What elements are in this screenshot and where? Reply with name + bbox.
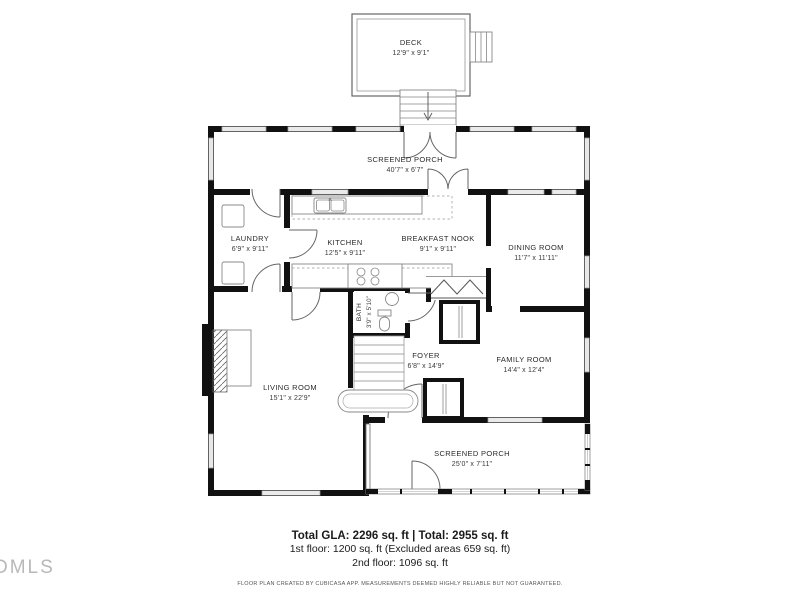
first-floor-line: 1st floor: 1200 sq. ft (Excluded areas 6… — [0, 543, 800, 557]
laundry-kitchen-door-icon — [289, 230, 317, 258]
room-label-screened-porch-bottom: SCREENED PORCH 25'0" x 7'11" — [434, 449, 510, 468]
room-name: KITCHEN — [327, 238, 362, 247]
stove-icon — [348, 264, 402, 288]
second-floor-line: 2nd floor: 1096 sq. ft — [0, 557, 800, 571]
room-name: LIVING ROOM — [263, 383, 317, 392]
foyer-closet-lower — [425, 380, 462, 418]
total-gla-line: Total GLA: 2296 sq. ft | Total: 2955 sq.… — [0, 529, 800, 543]
room-name: DINING ROOM — [508, 243, 564, 252]
room-label-dining-room: DINING ROOM 11'7" x 11'11" — [508, 243, 564, 262]
laundry-fixtures — [222, 205, 244, 284]
area-summary: Total GLA: 2296 sq. ft | Total: 2955 sq.… — [0, 529, 800, 570]
walls — [202, 125, 590, 496]
room-name: FOYER — [412, 351, 440, 360]
bottom-porch-structure — [366, 424, 590, 494]
deck-stairs-icon — [400, 90, 456, 130]
room-label-family-room: FAMILY ROOM 14'4" x 12'4" — [496, 355, 551, 374]
room-label-living-room: LIVING ROOM 15'1" x 22'9" — [263, 383, 317, 402]
room-label-laundry: LAUNDRY 6'9" x 9'11" — [231, 234, 269, 253]
room-name: SCREENED PORCH — [434, 449, 510, 458]
room-label-kitchen: KITCHEN 12'5" x 9'11" — [325, 238, 366, 257]
room-label-foyer: FOYER 6'8" x 14'9" — [408, 351, 445, 370]
kitchen-living-door-icon — [292, 292, 320, 320]
room-dims: 11'7" x 11'11" — [514, 255, 558, 262]
foyer-closet-upper — [441, 302, 478, 342]
room-name: SCREENED PORCH — [367, 155, 443, 164]
room-dims: 40'7" x 6'7" — [387, 167, 424, 174]
living-fireplace-icon — [213, 330, 251, 392]
bath-fixtures — [378, 293, 399, 332]
room-dims: 12'9" x 9'1" — [393, 50, 430, 57]
room-label-bath: BATH 3'9" x 5'10" — [356, 296, 373, 328]
washer-icon — [222, 205, 244, 227]
french-door-nook-icon — [428, 169, 468, 189]
room-dims: 6'9" x 9'11" — [232, 246, 269, 253]
kitchen-sink-icon — [314, 198, 346, 213]
room-label-screened-porch-top: SCREENED PORCH 40'7" x 6'7" — [367, 155, 443, 174]
deck-side-steps-icon — [470, 32, 492, 62]
room-name: FAMILY ROOM — [496, 355, 551, 364]
bath-sink-icon — [386, 293, 399, 306]
floor-plan-drawing: DECK 12'9" x 9'1" SCREENED PORCH 40'7" x… — [0, 0, 800, 600]
nook-fireplace-icon — [426, 276, 486, 300]
room-dims: 3'9" x 5'10" — [367, 296, 373, 328]
dmls-watermark: DMLS — [0, 557, 55, 579]
room-dims: 25'0" x 7'11" — [452, 461, 493, 468]
deck-structure — [352, 14, 492, 130]
room-label-breakfast-nook: BREAKFAST NOOK 9'1" x 9'11" — [401, 234, 474, 253]
room-dims: 6'8" x 14'9" — [408, 363, 445, 370]
toilet-icon — [378, 310, 391, 331]
room-dims: 12'5" x 9'11" — [325, 250, 366, 257]
room-name: BATH — [356, 303, 363, 321]
room-name: LAUNDRY — [231, 234, 269, 243]
room-dims: 14'4" x 12'4" — [504, 367, 545, 374]
room-name: DECK — [400, 38, 422, 47]
room-dims: 9'1" x 9'11" — [420, 246, 457, 253]
dryer-icon — [222, 262, 244, 284]
room-dims: 15'1" x 22'9" — [270, 395, 311, 402]
chimney-bump — [202, 324, 213, 396]
room-name: BREAKFAST NOOK — [401, 234, 474, 243]
porch-door-icon — [412, 461, 440, 489]
floor-plan-page: DECK 12'9" x 9'1" SCREENED PORCH 40'7" x… — [0, 0, 800, 600]
disclaimer-text: FLOOR PLAN CREATED BY CUBICASA APP. MEAS… — [0, 581, 800, 587]
